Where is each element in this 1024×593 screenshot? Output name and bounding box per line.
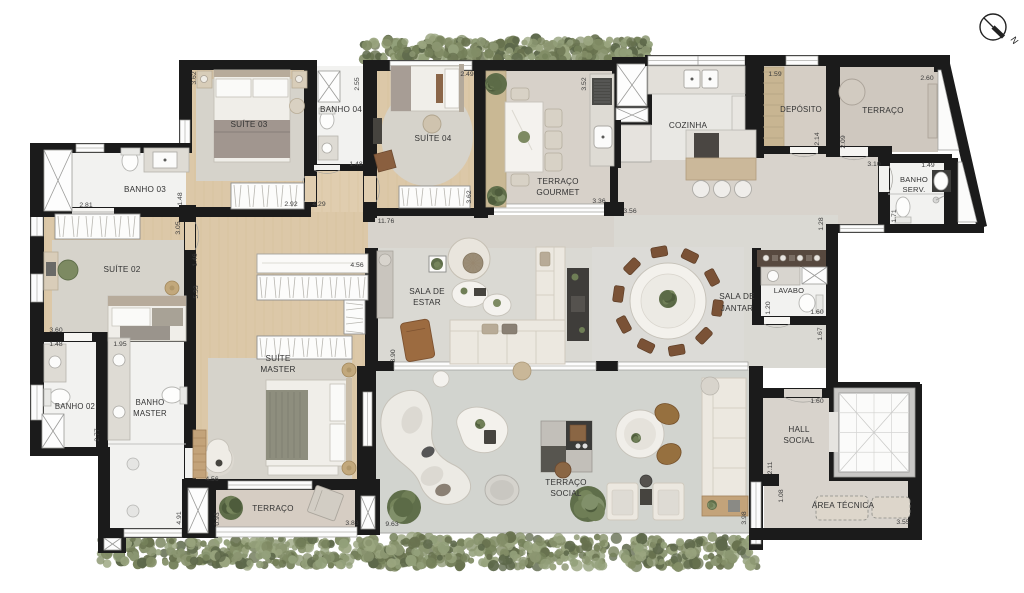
svg-text:BANHO 02: BANHO 02 xyxy=(55,402,95,411)
svg-text:JANTAR: JANTAR xyxy=(721,304,753,313)
svg-text:BANHO 03: BANHO 03 xyxy=(124,185,166,194)
svg-text:1.46: 1.46 xyxy=(192,253,199,266)
svg-text:4.29: 4.29 xyxy=(312,201,325,208)
svg-text:SUÍTE 04: SUÍTE 04 xyxy=(414,133,451,143)
svg-text:3.98: 3.98 xyxy=(741,511,748,524)
svg-text:GOURMET: GOURMET xyxy=(536,188,579,197)
svg-text:TERRAÇO: TERRAÇO xyxy=(545,478,586,487)
svg-text:1.28: 1.28 xyxy=(818,217,825,230)
svg-text:1.67: 1.67 xyxy=(817,327,824,340)
svg-text:HALL: HALL xyxy=(788,425,810,434)
svg-text:1.60: 1.60 xyxy=(810,309,823,316)
svg-text:TERRAÇO: TERRAÇO xyxy=(252,504,293,513)
svg-text:1.48: 1.48 xyxy=(177,192,184,205)
svg-text:SUÍTE 03: SUÍTE 03 xyxy=(230,119,267,129)
svg-text:3.05: 3.05 xyxy=(175,221,182,234)
svg-text:ÁREA TÉCNICA: ÁREA TÉCNICA xyxy=(812,500,875,510)
svg-text:2.92: 2.92 xyxy=(284,201,297,208)
svg-text:ESTAR: ESTAR xyxy=(413,298,441,307)
svg-text:1.49: 1.49 xyxy=(921,162,934,169)
svg-text:2.55: 2.55 xyxy=(354,77,361,90)
svg-text:COZINHA: COZINHA xyxy=(669,121,708,130)
svg-text:3.52: 3.52 xyxy=(581,77,588,90)
svg-text:2.49: 2.49 xyxy=(460,71,473,78)
svg-text:1.95: 1.95 xyxy=(113,341,126,348)
svg-text:1.20: 1.20 xyxy=(765,301,772,314)
svg-text:4.56: 4.56 xyxy=(350,262,363,269)
svg-text:MASTER: MASTER xyxy=(133,409,167,418)
svg-text:1.48: 1.48 xyxy=(49,341,62,348)
svg-text:3.10: 3.10 xyxy=(867,161,880,168)
svg-text:TERRAÇO: TERRAÇO xyxy=(537,177,578,186)
svg-text:BANHO 04: BANHO 04 xyxy=(320,105,362,114)
svg-text:0.93: 0.93 xyxy=(214,512,221,525)
svg-text:SUÍTE: SUÍTE xyxy=(265,353,290,363)
svg-text:2.11: 2.11 xyxy=(767,461,774,474)
svg-text:BANHO: BANHO xyxy=(900,175,928,184)
svg-text:1.08: 1.08 xyxy=(778,489,785,502)
svg-text:1.48: 1.48 xyxy=(349,161,362,168)
svg-text:2.60: 2.60 xyxy=(920,75,933,82)
svg-text:TERRAÇO: TERRAÇO xyxy=(862,106,903,115)
svg-text:LAVABO: LAVABO xyxy=(774,286,804,295)
svg-text:3.90: 3.90 xyxy=(390,349,397,362)
svg-text:3.55: 3.55 xyxy=(896,519,909,526)
svg-text:BANHO: BANHO xyxy=(136,398,165,407)
svg-text:1.60: 1.60 xyxy=(810,398,823,405)
svg-text:3.56: 3.56 xyxy=(623,208,636,215)
svg-text:1.71: 1.71 xyxy=(891,209,898,222)
svg-text:4.91: 4.91 xyxy=(176,511,183,524)
svg-text:MASTER: MASTER xyxy=(260,365,295,374)
svg-text:2.77: 2.77 xyxy=(94,428,101,441)
svg-text:3.36: 3.36 xyxy=(592,198,605,205)
svg-text:SUÍTE 02: SUÍTE 02 xyxy=(103,264,140,274)
svg-text:3.60: 3.60 xyxy=(49,327,62,334)
svg-text:3.62: 3.62 xyxy=(191,71,198,84)
svg-text:DEPÓSITO: DEPÓSITO xyxy=(780,105,822,114)
svg-text:SERV.: SERV. xyxy=(903,185,926,194)
svg-text:4.56: 4.56 xyxy=(205,476,218,483)
svg-text:SALA DE: SALA DE xyxy=(719,292,755,301)
svg-text:SOCIAL: SOCIAL xyxy=(783,436,814,445)
svg-text:2.14: 2.14 xyxy=(814,132,821,145)
svg-text:3.62: 3.62 xyxy=(466,190,473,203)
svg-text:SALA DE: SALA DE xyxy=(409,287,445,296)
svg-text:9.63: 9.63 xyxy=(385,521,398,528)
svg-text:3.83: 3.83 xyxy=(345,520,358,527)
svg-text:1.59: 1.59 xyxy=(768,71,781,78)
svg-text:2.81: 2.81 xyxy=(79,202,92,209)
svg-text:5.33: 5.33 xyxy=(193,285,200,298)
svg-text:SOCIAL: SOCIAL xyxy=(550,489,581,498)
svg-text:2.09: 2.09 xyxy=(840,135,847,148)
svg-text:11.76: 11.76 xyxy=(378,218,395,225)
